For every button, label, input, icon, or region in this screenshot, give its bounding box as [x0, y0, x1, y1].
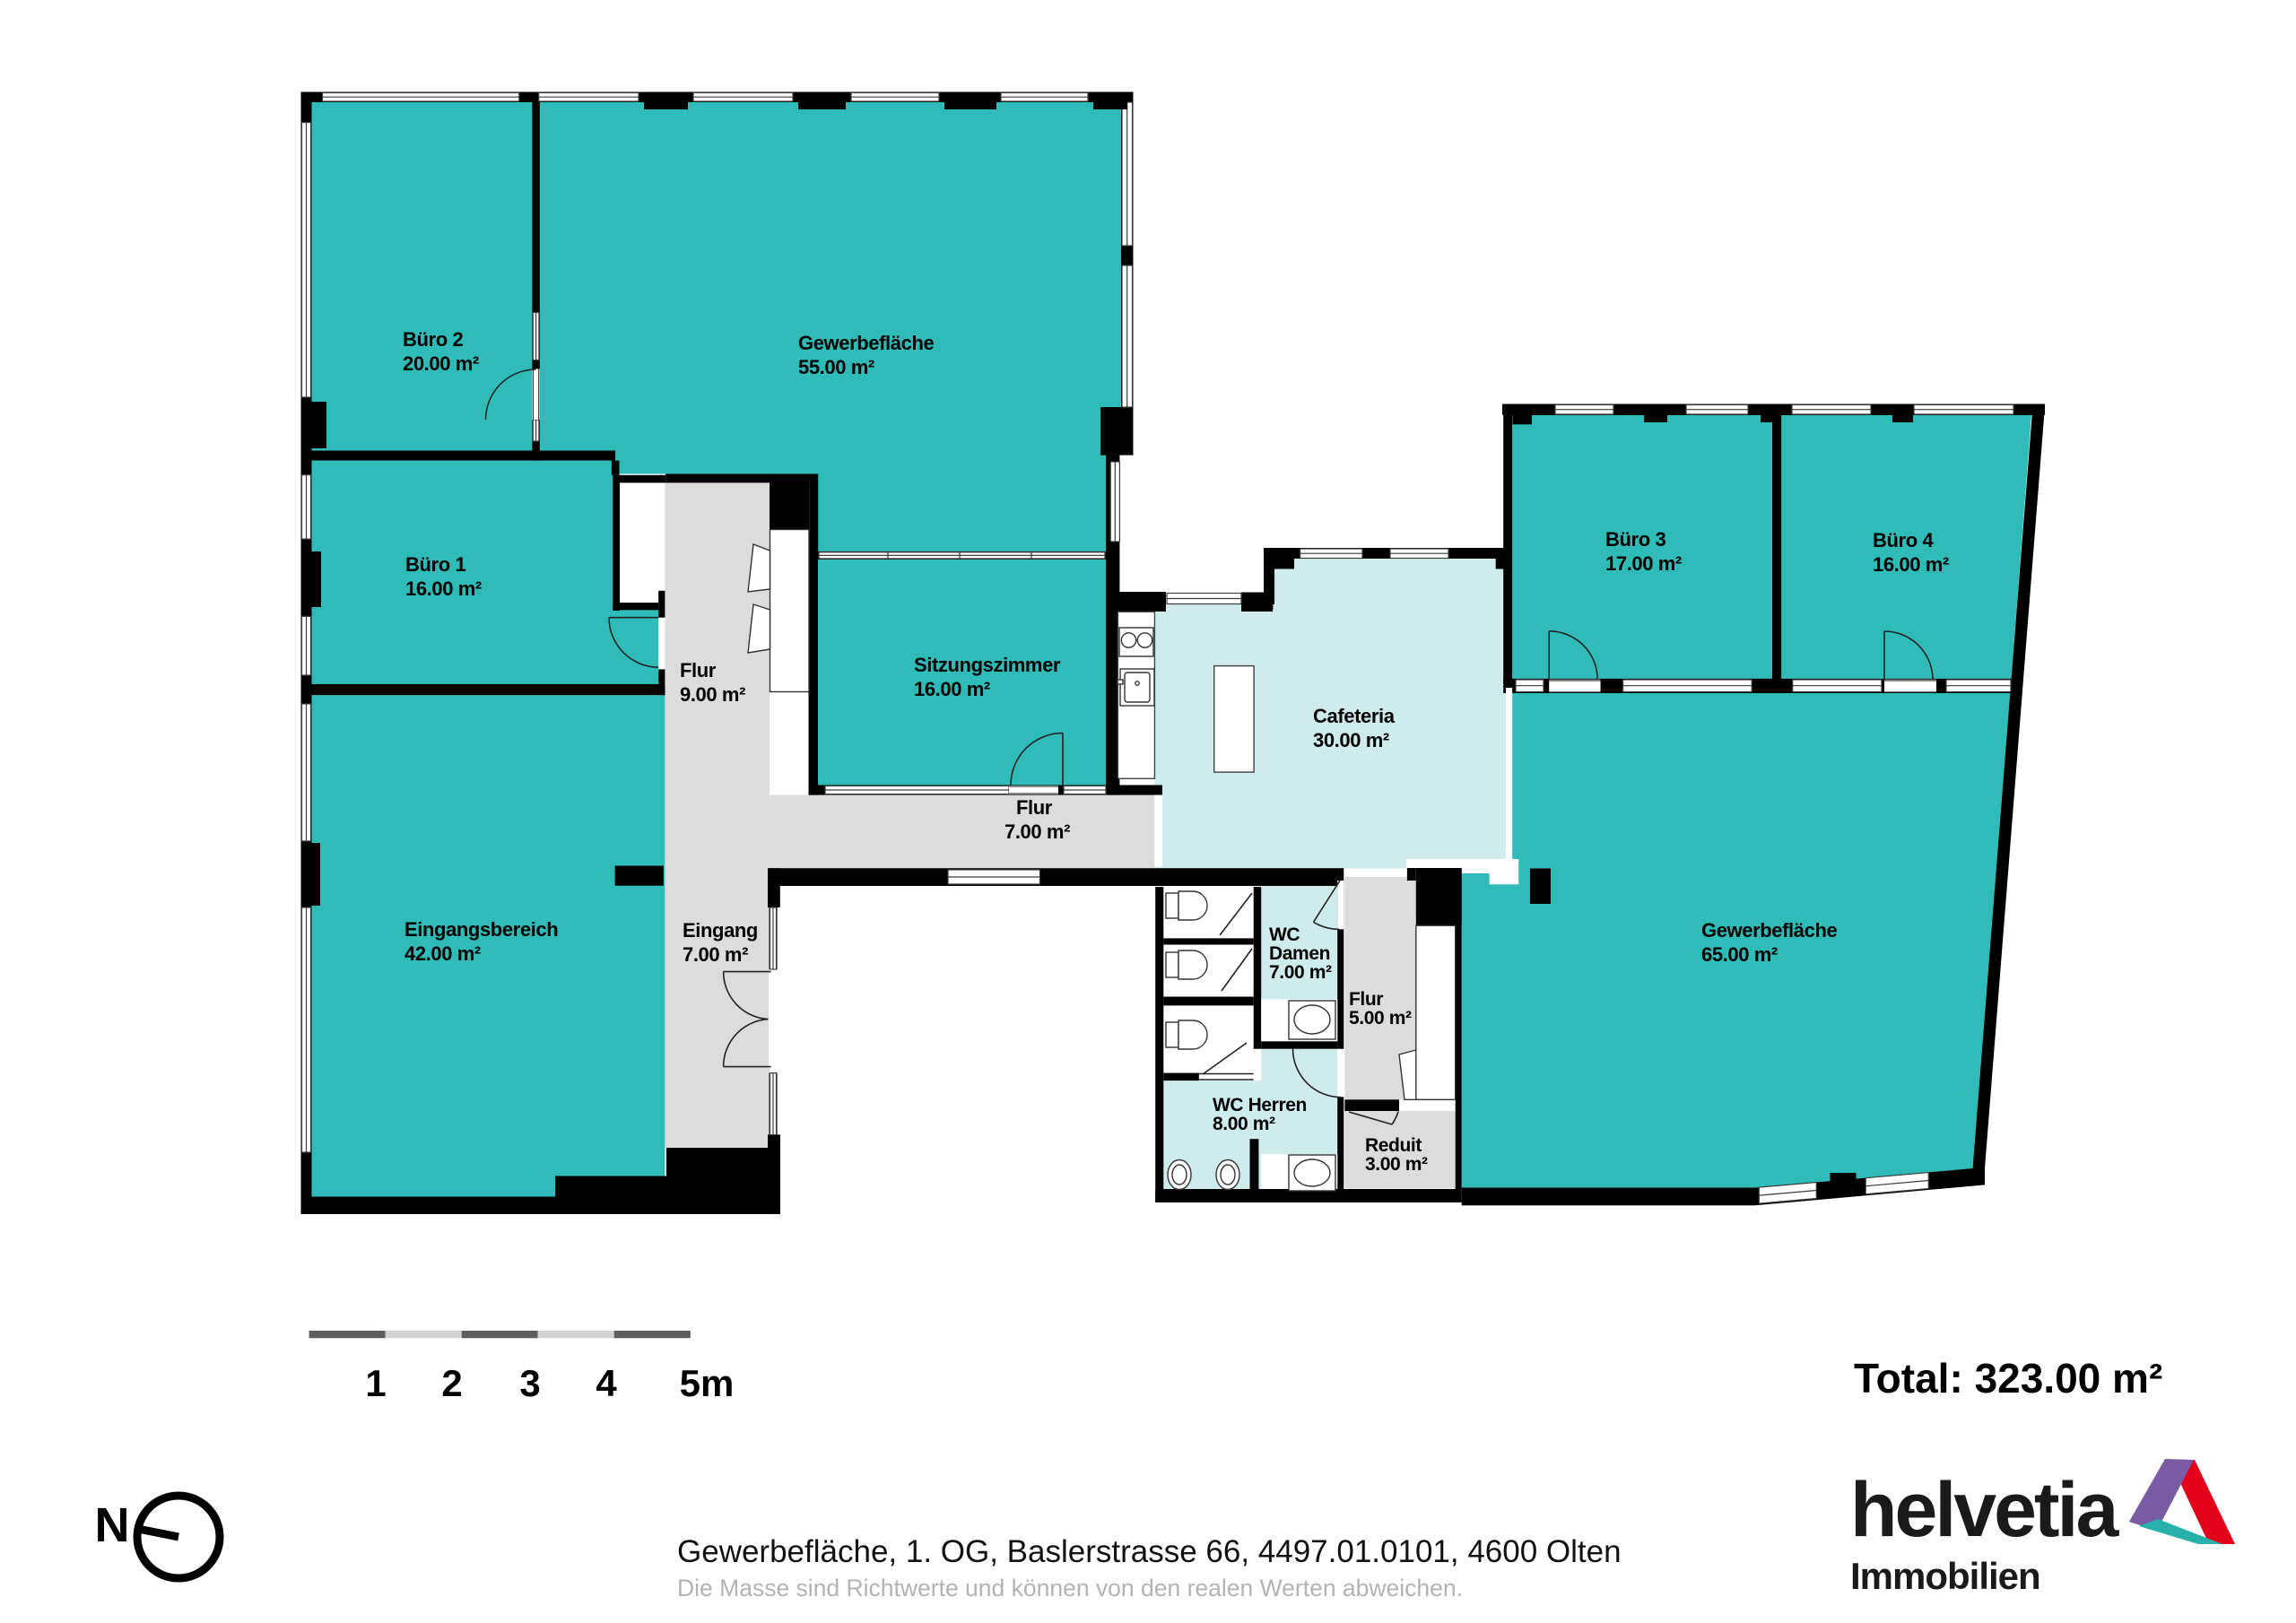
svg-text:Büro 2: Büro 2 — [403, 328, 463, 351]
svg-text:Büro 3: Büro 3 — [1605, 528, 1665, 551]
svg-text:20.00 m²: 20.00 m² — [403, 352, 479, 375]
svg-text:65.00 m²: 65.00 m² — [1701, 943, 1778, 966]
svg-text:16.00 m²: 16.00 m² — [405, 577, 482, 600]
svg-text:42.00 m²: 42.00 m² — [404, 942, 481, 965]
svg-text:2: 2 — [441, 1362, 462, 1404]
svg-text:5.00 m²: 5.00 m² — [1349, 1008, 1412, 1028]
svg-text:Sitzungszimmer: Sitzungszimmer — [914, 654, 1061, 676]
svg-text:helvetia: helvetia — [1850, 1467, 2119, 1553]
svg-text:5m: 5m — [680, 1362, 735, 1404]
svg-text:9.00 m²: 9.00 m² — [680, 683, 745, 706]
svg-text:Flur: Flur — [1349, 989, 1383, 1010]
svg-text:Total: 323.00 m²: Total: 323.00 m² — [1854, 1355, 2162, 1402]
svg-text:55.00 m²: 55.00 m² — [798, 356, 874, 378]
svg-text:16.00 m²: 16.00 m² — [914, 678, 990, 700]
svg-text:Reduit: Reduit — [1365, 1135, 1422, 1156]
svg-text:8.00 m²: 8.00 m² — [1213, 1114, 1275, 1134]
svg-text:Die Masse sind Richtwerte und: Die Masse sind Richtwerte und können von… — [677, 1575, 1463, 1601]
svg-text:Cafeteria: Cafeteria — [1313, 705, 1396, 727]
svg-text:Damen: Damen — [1269, 943, 1330, 964]
svg-text:Flur: Flur — [1016, 796, 1053, 819]
svg-text:4: 4 — [596, 1362, 617, 1404]
svg-text:Flur: Flur — [680, 659, 717, 681]
svg-text:3: 3 — [519, 1362, 540, 1404]
svg-text:WC Herren: WC Herren — [1213, 1095, 1307, 1115]
svg-text:Gewerbefläche: Gewerbefläche — [798, 332, 934, 354]
svg-text:N: N — [95, 1498, 130, 1552]
svg-text:WC: WC — [1269, 924, 1300, 945]
svg-text:Gewerbefläche: Gewerbefläche — [1701, 919, 1837, 942]
svg-text:Büro 1: Büro 1 — [405, 553, 465, 576]
svg-text:3.00 m²: 3.00 m² — [1365, 1154, 1428, 1175]
svg-text:Eingang: Eingang — [683, 919, 758, 942]
svg-text:Eingangsbereich: Eingangsbereich — [404, 918, 558, 941]
svg-text:7.00 m²: 7.00 m² — [1269, 962, 1332, 983]
svg-text:Immobilien: Immobilien — [1850, 1555, 2040, 1597]
svg-text:1: 1 — [365, 1362, 386, 1404]
svg-text:7.00 m²: 7.00 m² — [683, 943, 748, 966]
svg-text:7.00 m²: 7.00 m² — [1004, 820, 1070, 843]
svg-text:30.00 m²: 30.00 m² — [1313, 729, 1389, 751]
svg-text:16.00 m²: 16.00 m² — [1873, 553, 1949, 576]
svg-text:Büro 4: Büro 4 — [1873, 529, 1934, 551]
svg-text:17.00 m²: 17.00 m² — [1605, 552, 1682, 575]
svg-text:Gewerbefläche, 1. OG, Baslerst: Gewerbefläche, 1. OG, Baslerstrasse 66, … — [677, 1534, 1622, 1569]
